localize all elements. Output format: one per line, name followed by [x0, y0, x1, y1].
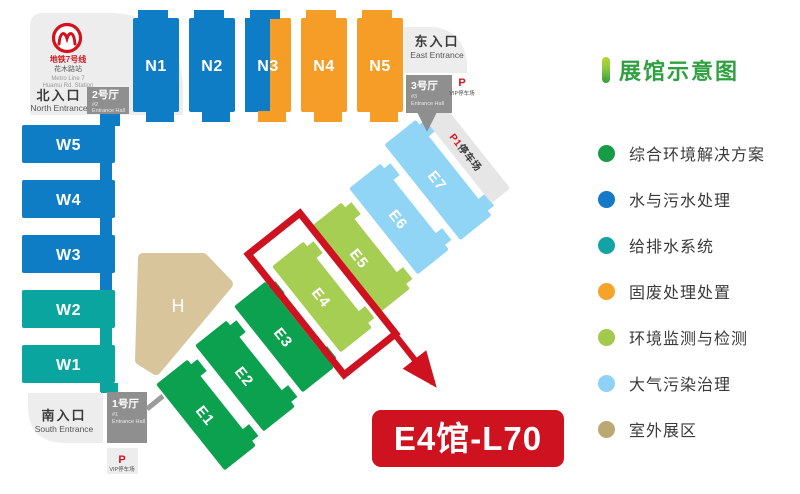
hall-h-label: H: [172, 296, 185, 316]
legend-item-2: 给排水系统: [598, 222, 800, 268]
legend-dot-icon: [598, 283, 615, 300]
legend-item-5: 大气污染治理: [598, 360, 800, 406]
legend-panel: 展馆示意图 综合环境解决方案水与污水处理给排水系统固废处理处置环境监测与检测大气…: [590, 0, 800, 494]
north-entrance-label-en: North Entrance: [30, 103, 87, 113]
hall-w1-label: W1: [56, 357, 81, 374]
legend-dot-icon: [598, 375, 615, 392]
hall-n2: N2: [189, 10, 235, 122]
venue-map: 地铁7号线 花木路站 Metro Line 7 Huamu Rd. Statio…: [0, 0, 590, 494]
hall-w5-label: W5: [56, 137, 81, 154]
hall1-name: 1号厅: [112, 398, 139, 410]
hall-n1-label: N1: [145, 58, 166, 75]
hall-n1: N1: [133, 10, 179, 122]
hall-w4: W4: [22, 180, 115, 235]
hall-n5: N5: [357, 10, 403, 122]
south-entrance-label-cn: 南入口: [41, 408, 86, 423]
exhibition-map-page: 地铁7号线 花木路站 Metro Line 7 Huamu Rd. Statio…: [0, 0, 800, 494]
legend-item-6: 室外展区: [598, 406, 800, 452]
hall-w4-label: W4: [56, 192, 81, 209]
legend-item-label: 固废处理处置: [629, 279, 731, 303]
connector-line-e1: [147, 396, 163, 409]
connector-tab: [101, 383, 118, 393]
legend-item-label: 水与污水处理: [629, 187, 731, 211]
legend-dot-icon: [598, 329, 615, 346]
east-entrance-label-en: East Entrance: [410, 50, 464, 60]
metro-station-name: 花木路站: [54, 64, 82, 73]
legend-item-3: 固废处理处置: [598, 268, 800, 314]
north-entrance-label-cn: 北入口: [36, 88, 81, 103]
east-entrance-label-cn: 东入口: [414, 34, 459, 49]
vip-north-label: VIP停车场: [449, 89, 475, 97]
legend-item-1: 水与污水处理: [598, 176, 800, 222]
vip-south-p-icon: P: [118, 454, 125, 466]
legend-item-label: 环境监测与检测: [629, 325, 748, 349]
legend-item-0: 综合环境解决方案: [598, 130, 800, 176]
legend-dot-icon: [598, 191, 615, 208]
legend-title-row: 展馆示意图: [602, 54, 800, 86]
vip-south-label: VIP停车场: [109, 465, 135, 473]
legend-list: 综合环境解决方案水与污水处理给排水系统固废处理处置环境监测与检测大气污染治理室外…: [598, 130, 800, 452]
entrance-hall-2-box: 2号厅 #2 Entrance Hall: [87, 87, 129, 114]
legend-title-bar-icon: [602, 57, 610, 83]
hall1-en: Entrance Hall: [112, 419, 145, 425]
hall-w2-label: W2: [56, 302, 81, 319]
hall3-num: #3: [411, 94, 417, 100]
legend-item-label: 室外展区: [629, 417, 697, 441]
callout-arrow: [396, 336, 433, 383]
hall-n4: N4: [301, 10, 347, 122]
metro-logo-icon: [54, 25, 81, 52]
entrance-hall-1-box: 1号厅 #1 Entrance Hall: [107, 392, 147, 443]
legend-item-label: 给排水系统: [629, 233, 714, 257]
hall2-en: Entrance Hall: [92, 108, 125, 114]
e4-callout-label: E4馆-L70: [394, 420, 542, 457]
legend-title: 展馆示意图: [619, 54, 739, 86]
hall3-name: 3号厅: [411, 80, 438, 92]
legend-dot-icon: [598, 421, 615, 438]
hall-n2-label: N2: [201, 58, 222, 75]
hall2-name: 2号厅: [92, 89, 119, 101]
e4-callout: E4馆-L70: [372, 410, 564, 467]
legend-item-4: 环境监测与检测: [598, 314, 800, 360]
hall1-num: #1: [112, 412, 118, 418]
metro-line-name: 地铁7号线: [50, 54, 86, 64]
south-entrance-label-en: South Entrance: [35, 424, 94, 434]
legend-item-label: 综合环境解决方案: [629, 141, 765, 165]
hall-w3: W3: [22, 235, 115, 290]
hall-n4-label: N4: [313, 58, 334, 75]
hall-n5-label: N5: [369, 58, 390, 75]
legend-dot-icon: [598, 145, 615, 162]
hall3-en: Entrance Hall: [411, 101, 444, 107]
legend-dot-icon: [598, 237, 615, 254]
connector-tab: [100, 114, 120, 126]
vip-north-p-icon: P: [458, 77, 465, 89]
vip-parking-north: P VIP停车场: [449, 77, 475, 97]
hall-w3-label: W3: [56, 247, 81, 264]
hall-n3-label: N3: [257, 58, 278, 75]
metro-line-name-en: Metro Line 7: [51, 76, 85, 82]
hall-n3: N3: [245, 10, 291, 122]
legend-item-label: 大气污染治理: [629, 371, 731, 395]
hall-w2: W2: [22, 290, 115, 345]
